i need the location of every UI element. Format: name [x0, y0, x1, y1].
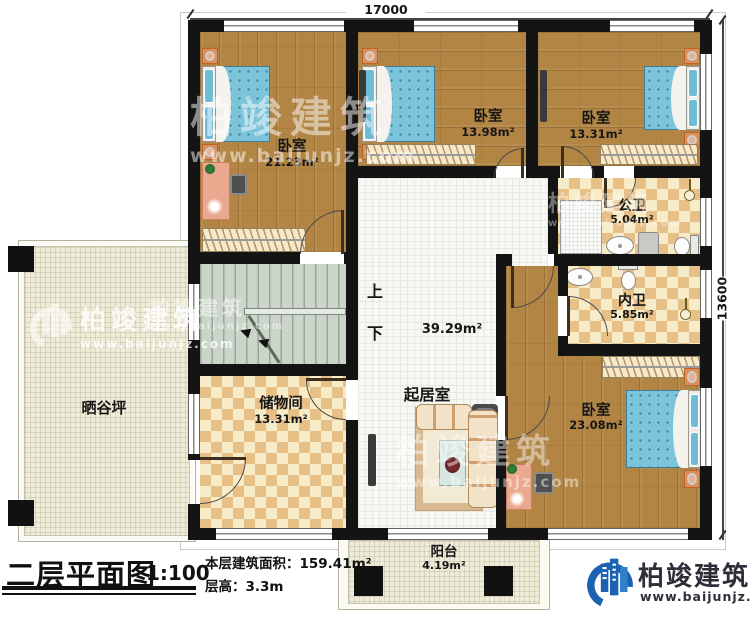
wall-segment — [188, 528, 216, 540]
wardrobe — [366, 144, 476, 165]
window — [700, 270, 712, 318]
sofa — [416, 404, 472, 430]
wall-segment — [700, 130, 712, 198]
pillow — [688, 99, 698, 127]
room-label-living: 起居室 — [377, 387, 477, 403]
pillow — [688, 69, 698, 97]
wall-segment — [332, 528, 388, 540]
wall-segment — [346, 420, 358, 528]
window — [224, 20, 344, 32]
plant-icon — [205, 164, 215, 174]
room-area-living: 39.29m² — [412, 323, 492, 337]
sofa — [468, 410, 498, 508]
floor-plan: 17000 13600 卧室 21.23m² 卧室 13.98m² 卧室 13.… — [0, 0, 750, 625]
window — [188, 284, 200, 340]
room-label-bath-private: 内卫 — [592, 294, 672, 309]
pillow — [690, 394, 699, 428]
room-area-balcony: 4.19m² — [404, 560, 484, 572]
desk-lamp — [509, 491, 525, 507]
pillow — [204, 106, 214, 140]
wall-segment — [346, 20, 358, 264]
tv-icon — [368, 434, 376, 486]
wall-segment — [526, 20, 538, 178]
door-leaf — [511, 266, 514, 308]
nightstand — [362, 48, 378, 64]
column — [8, 246, 34, 272]
nightstand — [202, 144, 218, 160]
washer-icon — [638, 232, 659, 256]
window — [548, 528, 688, 540]
stair-down-label: 下 — [365, 326, 385, 343]
wall-segment — [634, 166, 712, 178]
window — [700, 198, 712, 246]
toilet-icon — [621, 271, 636, 290]
stair-up-label: 上 — [365, 284, 385, 301]
door-leaf — [200, 457, 246, 460]
plant-icon — [445, 457, 460, 473]
door-leaf — [521, 148, 524, 178]
dimension-top-label: 17000 — [346, 3, 426, 16]
window — [216, 528, 332, 540]
desk-lamp — [206, 198, 223, 215]
balcony-door — [388, 528, 488, 540]
door-leaf — [505, 396, 508, 440]
wall-segment — [558, 266, 568, 296]
wall-segment — [496, 254, 512, 266]
wall-segment — [496, 266, 506, 396]
stair-handrail — [244, 308, 346, 315]
window — [414, 20, 518, 32]
column — [8, 500, 34, 526]
wardrobe — [202, 228, 306, 252]
wall-segment — [346, 166, 496, 178]
window — [188, 394, 200, 454]
drying-yard-floor — [24, 246, 190, 536]
wall-segment — [548, 178, 558, 254]
wardrobe — [600, 144, 698, 165]
plant-icon — [507, 464, 517, 474]
room-label-bedroom-br: 卧室 — [556, 404, 636, 419]
nightstand — [684, 368, 700, 386]
tv-icon — [540, 70, 547, 122]
wall-segment — [700, 20, 712, 54]
wall-segment — [344, 252, 358, 264]
door-leaf — [567, 296, 570, 336]
room-label-storage: 储物间 — [241, 397, 321, 412]
nightstand — [684, 48, 700, 64]
computer-icon — [230, 174, 247, 195]
bed-sheet — [673, 390, 688, 468]
room-area-bedroom-tm: 13.98m² — [448, 126, 528, 138]
pillow — [690, 432, 699, 466]
door-leaf — [306, 378, 346, 381]
wall-segment — [188, 364, 358, 376]
lamp-icon — [684, 190, 695, 201]
nightstand — [202, 48, 218, 64]
wall-segment — [188, 252, 300, 264]
column — [484, 566, 513, 596]
wall-segment — [496, 440, 506, 528]
brand-website: www.baijunjz.com — [640, 589, 750, 604]
floor-area-note: 本层建筑面积：159.41m² — [205, 552, 372, 572]
brand-logo-icon — [585, 553, 635, 611]
wall-segment — [188, 454, 200, 460]
room-label-balcony: 阳台 — [404, 545, 484, 559]
room-label-drying-yard: 晒谷坪 — [54, 401, 154, 417]
pillow — [204, 69, 214, 103]
window — [610, 20, 694, 32]
wall-segment — [346, 264, 358, 380]
dimension-line-top — [190, 18, 710, 20]
brand-name: 柏竣建筑 — [638, 556, 750, 593]
tv-icon — [359, 70, 366, 122]
door-leaf — [341, 210, 344, 254]
room-label-bedroom-tr: 卧室 — [556, 112, 636, 127]
bed-sheet — [671, 66, 686, 130]
room-area-bedroom-tr: 13.31m² — [556, 128, 636, 140]
dimension-right-label: 13600 — [715, 277, 728, 321]
room-area-bedroom-br: 23.08m² — [556, 419, 636, 431]
floor-height-note: 层高：3.3m — [205, 575, 283, 595]
window — [700, 54, 712, 130]
room-area-bedroom-tl: 21.23m² — [252, 156, 332, 168]
wall-segment — [558, 344, 712, 356]
wall-segment — [488, 528, 548, 540]
wall-segment — [700, 466, 712, 540]
room-area-storage: 13.31m² — [241, 413, 321, 425]
room-label-bedroom-tm: 卧室 — [448, 110, 528, 125]
hall-floor — [358, 178, 548, 266]
wall-segment — [526, 166, 560, 178]
wall-segment — [188, 20, 200, 284]
computer-icon — [534, 472, 554, 494]
wall-segment — [558, 336, 568, 344]
nightstand — [684, 470, 700, 488]
room-label-bedroom-tl: 卧室 — [252, 140, 332, 155]
room-label-bath-public: 公卫 — [592, 199, 672, 214]
room-area-bath-public: 5.04m² — [592, 214, 672, 226]
room-area-bath-private: 5.85m² — [592, 309, 672, 321]
lamp-icon — [680, 309, 691, 320]
plan-scale: 1:100 — [146, 561, 210, 585]
title-underline — [2, 586, 196, 590]
wall-segment — [554, 254, 712, 266]
sink-icon — [606, 236, 634, 255]
door-leaf — [561, 146, 564, 178]
title-underline — [2, 593, 196, 595]
sink-icon — [566, 268, 593, 286]
window — [700, 388, 712, 466]
